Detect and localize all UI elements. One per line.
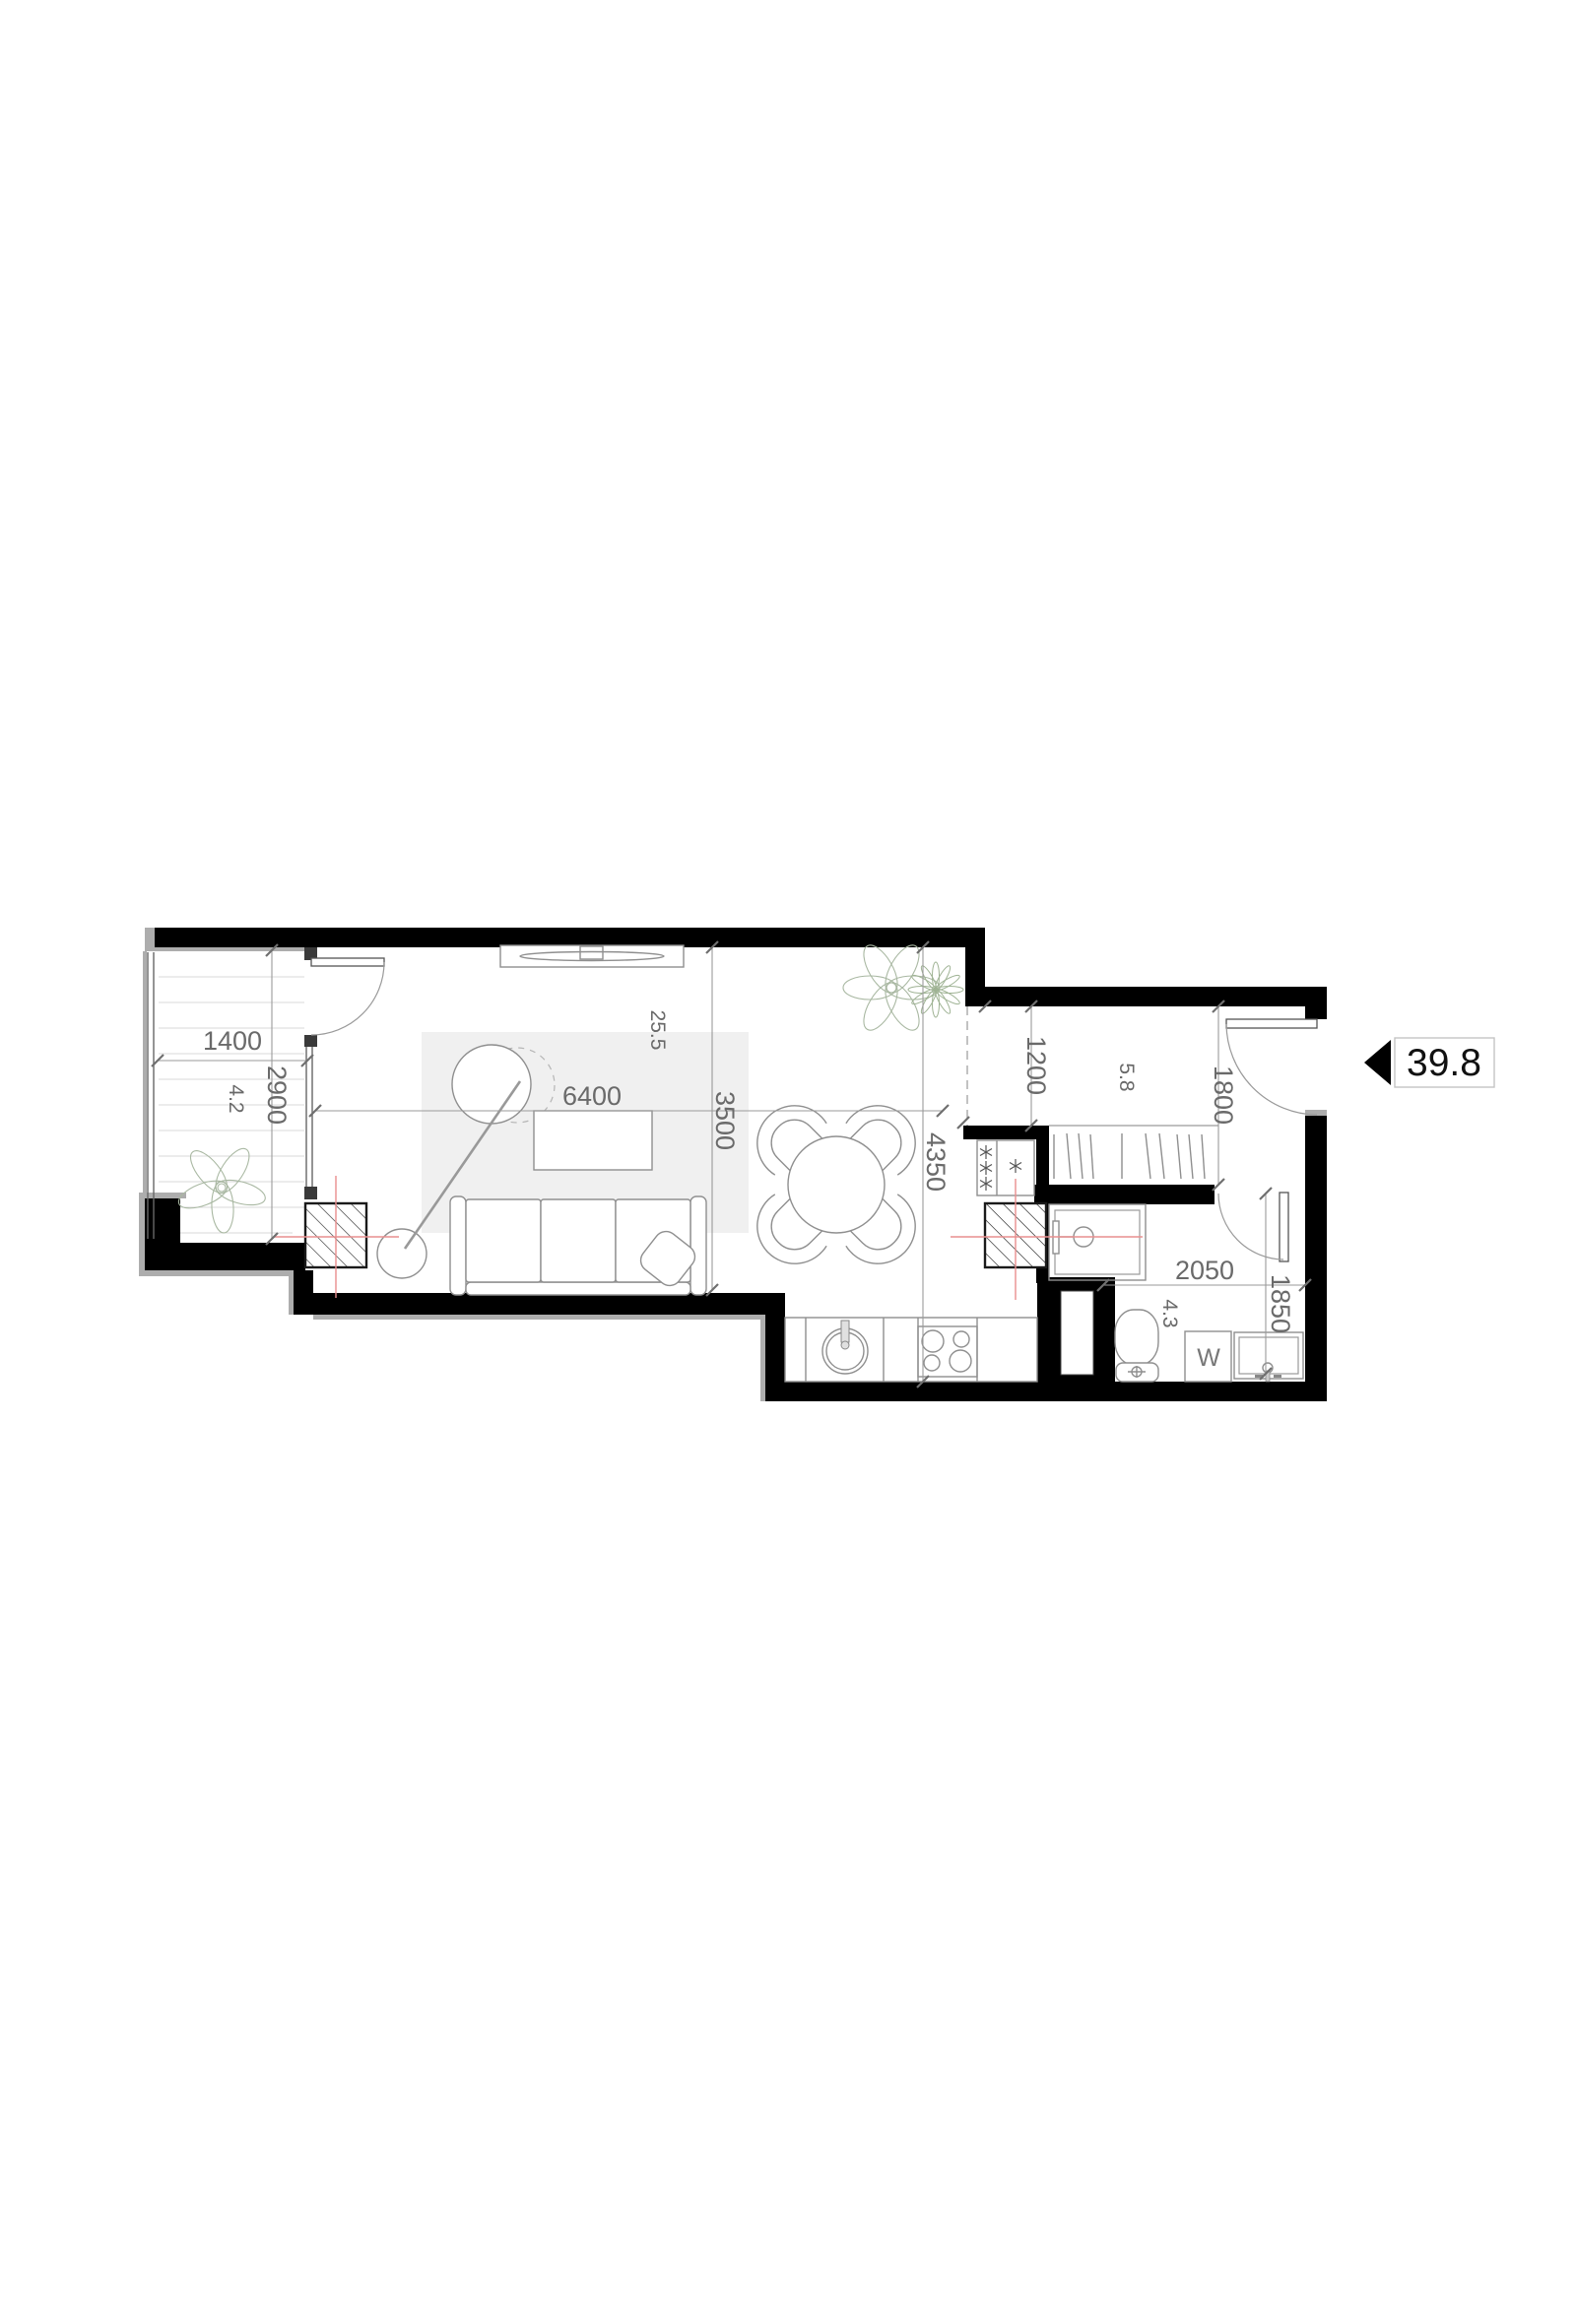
wall-bottom — [785, 1382, 1327, 1401]
door-leaf — [311, 958, 384, 966]
dim-living-depth: 3500 — [710, 1091, 740, 1150]
area-bathroom: 4.3 — [1158, 1299, 1181, 1327]
sofa-back — [466, 1282, 690, 1295]
dim-kitchen-wall: 4350 — [921, 1132, 951, 1192]
balcony-plant — [175, 1143, 268, 1233]
wall-right — [1305, 1116, 1327, 1401]
washing-machine-label: W — [1197, 1344, 1220, 1372]
total-area-badge: 39.8 — [1364, 1038, 1494, 1087]
tv-console — [500, 945, 684, 967]
duct-shaft — [1061, 1291, 1093, 1375]
coffee-table — [534, 1111, 652, 1170]
dim-balcony-width: 1400 — [203, 1026, 262, 1056]
wall-balcony-stub — [145, 1198, 180, 1243]
wall-top-hallway — [985, 987, 1327, 1006]
wall-step — [965, 947, 985, 1006]
toilet — [1115, 1310, 1158, 1382]
dim-hall-upper: 1200 — [1021, 1036, 1051, 1095]
bathroom-sink — [1234, 1332, 1303, 1382]
wardrobe — [1049, 1126, 1218, 1179]
wall-bottom-living — [294, 1293, 785, 1315]
window-post — [304, 1035, 317, 1047]
door-swing-arc — [1218, 1194, 1283, 1259]
dim-bath-depth: 1850 — [1266, 1274, 1295, 1333]
wall-left-step — [294, 1270, 313, 1315]
dim-hall-entry: 1800 — [1209, 1065, 1238, 1125]
sofa-cushion — [466, 1199, 541, 1282]
wall-bathroom-top — [1034, 1185, 1215, 1204]
sofa — [450, 1196, 706, 1295]
wall-end-cap — [145, 928, 155, 947]
sofa-cushion — [541, 1199, 616, 1282]
fridge-cabinet — [977, 1140, 1034, 1195]
wall-corridor-kitchen — [963, 1126, 1049, 1139]
entrance-arrow-icon — [1364, 1040, 1391, 1085]
wall-entrance-jamb-top — [1305, 1006, 1327, 1019]
bathroom-door — [1218, 1193, 1288, 1261]
area-hallway: 5.8 — [1115, 1063, 1138, 1091]
kitchen-counter — [785, 1318, 1037, 1382]
wall-balcony-bottom — [145, 1243, 305, 1270]
window-post — [304, 1187, 317, 1199]
living-room-plant — [843, 940, 963, 1036]
wall-top-living — [155, 928, 985, 947]
dining-table — [788, 1136, 885, 1233]
floor-plan-page: 1400 2900 6400 3500 4350 1200 1800 2050 … — [0, 0, 1576, 2324]
balcony-door — [311, 958, 384, 1035]
door-leaf — [1280, 1193, 1288, 1261]
door-leaf — [1226, 1019, 1317, 1028]
area-balcony: 4.2 — [225, 1084, 247, 1113]
shower-cabin — [1049, 1204, 1146, 1280]
area-living: 25.5 — [646, 1010, 669, 1051]
door-swing-arc — [311, 962, 384, 1035]
dining-set — [742, 1090, 931, 1279]
sofa-armrest — [690, 1196, 706, 1295]
entrance-door — [1226, 1019, 1317, 1115]
floor-plan-drawing: 1400 2900 6400 3500 4350 1200 1800 2050 … — [0, 0, 1576, 2324]
door-swing-arc — [1226, 1024, 1317, 1115]
dim-living-width: 6400 — [562, 1081, 622, 1111]
dim-bath-width: 2050 — [1175, 1256, 1234, 1285]
total-area-value: 39.8 — [1407, 1042, 1481, 1084]
sofa-armrest — [450, 1196, 466, 1295]
dim-balcony-depth: 2900 — [262, 1065, 292, 1125]
